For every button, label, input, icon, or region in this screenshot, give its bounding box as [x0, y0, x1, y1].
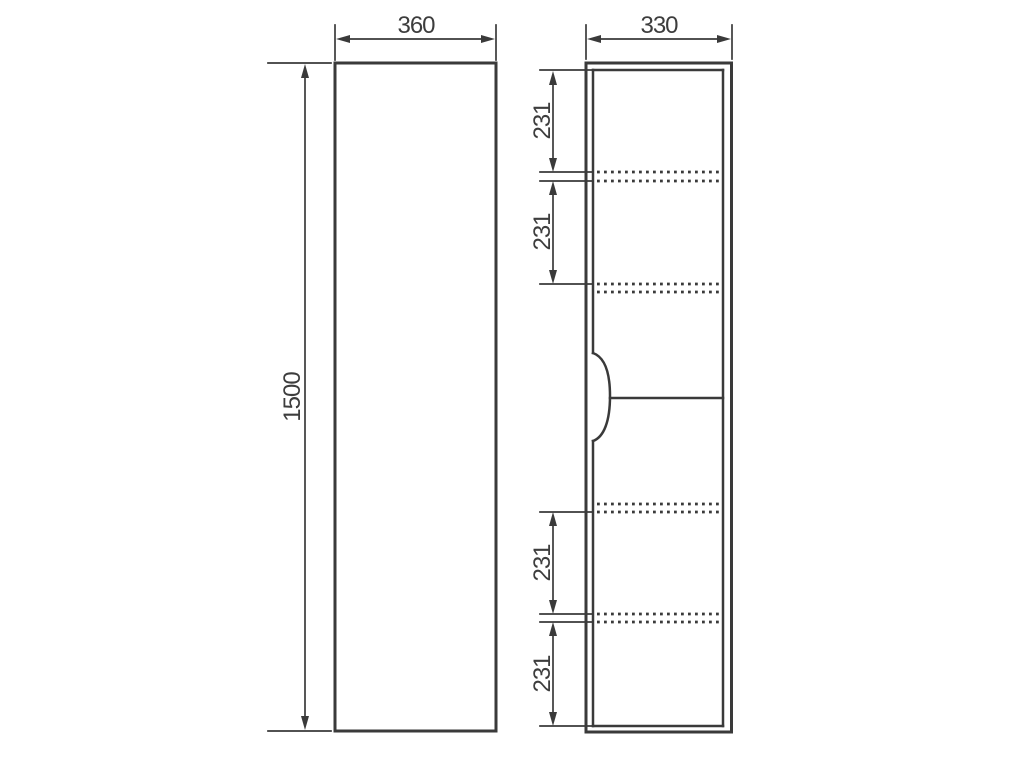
- handle-recess-profile: [593, 353, 610, 441]
- arrowhead-left-icon: [587, 35, 601, 43]
- arrowhead-up-icon: [301, 64, 309, 78]
- arrowhead-right-icon: [481, 35, 495, 43]
- arrowhead-left-icon: [336, 35, 350, 43]
- dim-compartments: 231 231 231 231: [529, 70, 592, 726]
- compartment-3-value: 231: [529, 544, 556, 582]
- arrowhead-up-icon: [549, 622, 557, 636]
- arrowhead-down-icon: [549, 712, 557, 726]
- dim-compartment-2: 231: [529, 181, 557, 284]
- arrowhead-up-icon: [549, 181, 557, 195]
- front-view: 360 1500: [268, 12, 496, 731]
- dim-front-height: 1500: [268, 63, 331, 731]
- dim-compartment-1: 231: [529, 71, 557, 172]
- arrowhead-right-icon: [717, 35, 731, 43]
- dim-compartment-4: 231: [529, 622, 557, 726]
- compartment-2-value: 231: [529, 213, 556, 251]
- cabinet-technical-drawing: 360 1500: [0, 0, 1024, 768]
- side-depth-value: 330: [640, 12, 678, 39]
- compartment-1-value: 231: [529, 102, 556, 140]
- drawing-canvas: 360 1500: [0, 0, 1024, 768]
- arrowhead-down-icon: [301, 716, 309, 730]
- front-view-outline: [335, 63, 496, 731]
- dim-side-depth: 330: [586, 12, 732, 59]
- arrowhead-up-icon: [549, 512, 557, 526]
- arrowhead-down-icon: [549, 158, 557, 172]
- dim-front-width: 360: [335, 12, 496, 60]
- arrowhead-down-icon: [549, 600, 557, 614]
- compartment-4-value: 231: [529, 655, 556, 693]
- front-height-value: 1500: [279, 372, 306, 422]
- arrowhead-down-icon: [549, 270, 557, 284]
- dim-compartment-3: 231: [529, 512, 557, 614]
- arrowhead-up-icon: [549, 71, 557, 85]
- side-view: 330 231 231: [529, 12, 732, 732]
- front-width-value: 360: [397, 12, 435, 39]
